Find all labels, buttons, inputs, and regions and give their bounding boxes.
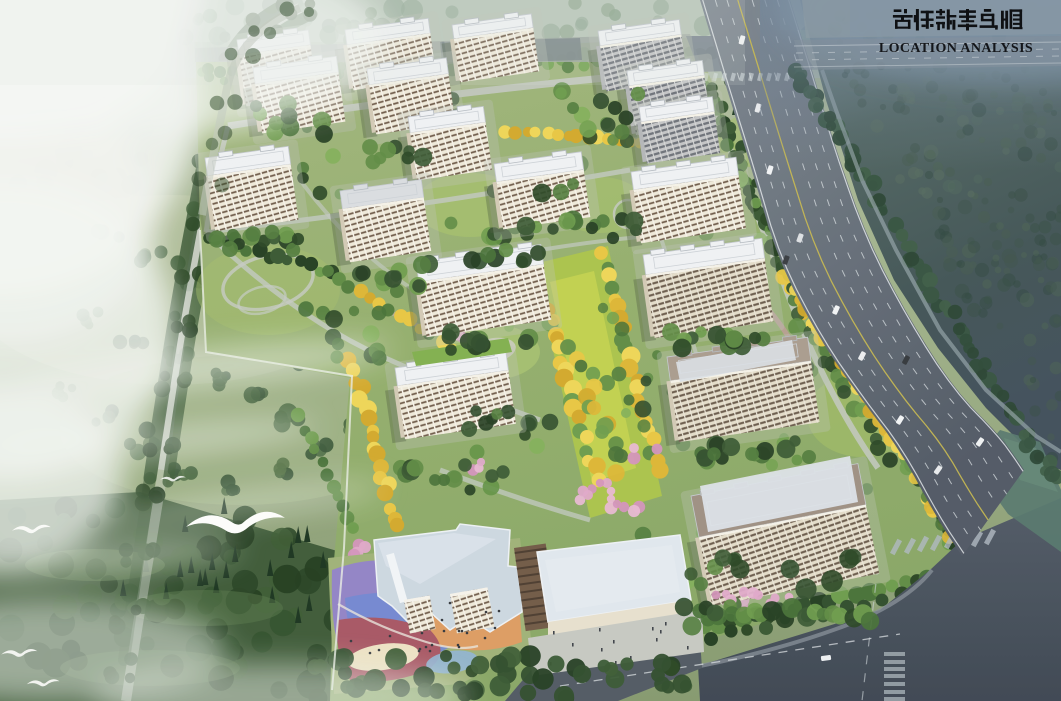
svg-text:LOCATION ANALYSIS: LOCATION ANALYSIS (879, 41, 1033, 56)
